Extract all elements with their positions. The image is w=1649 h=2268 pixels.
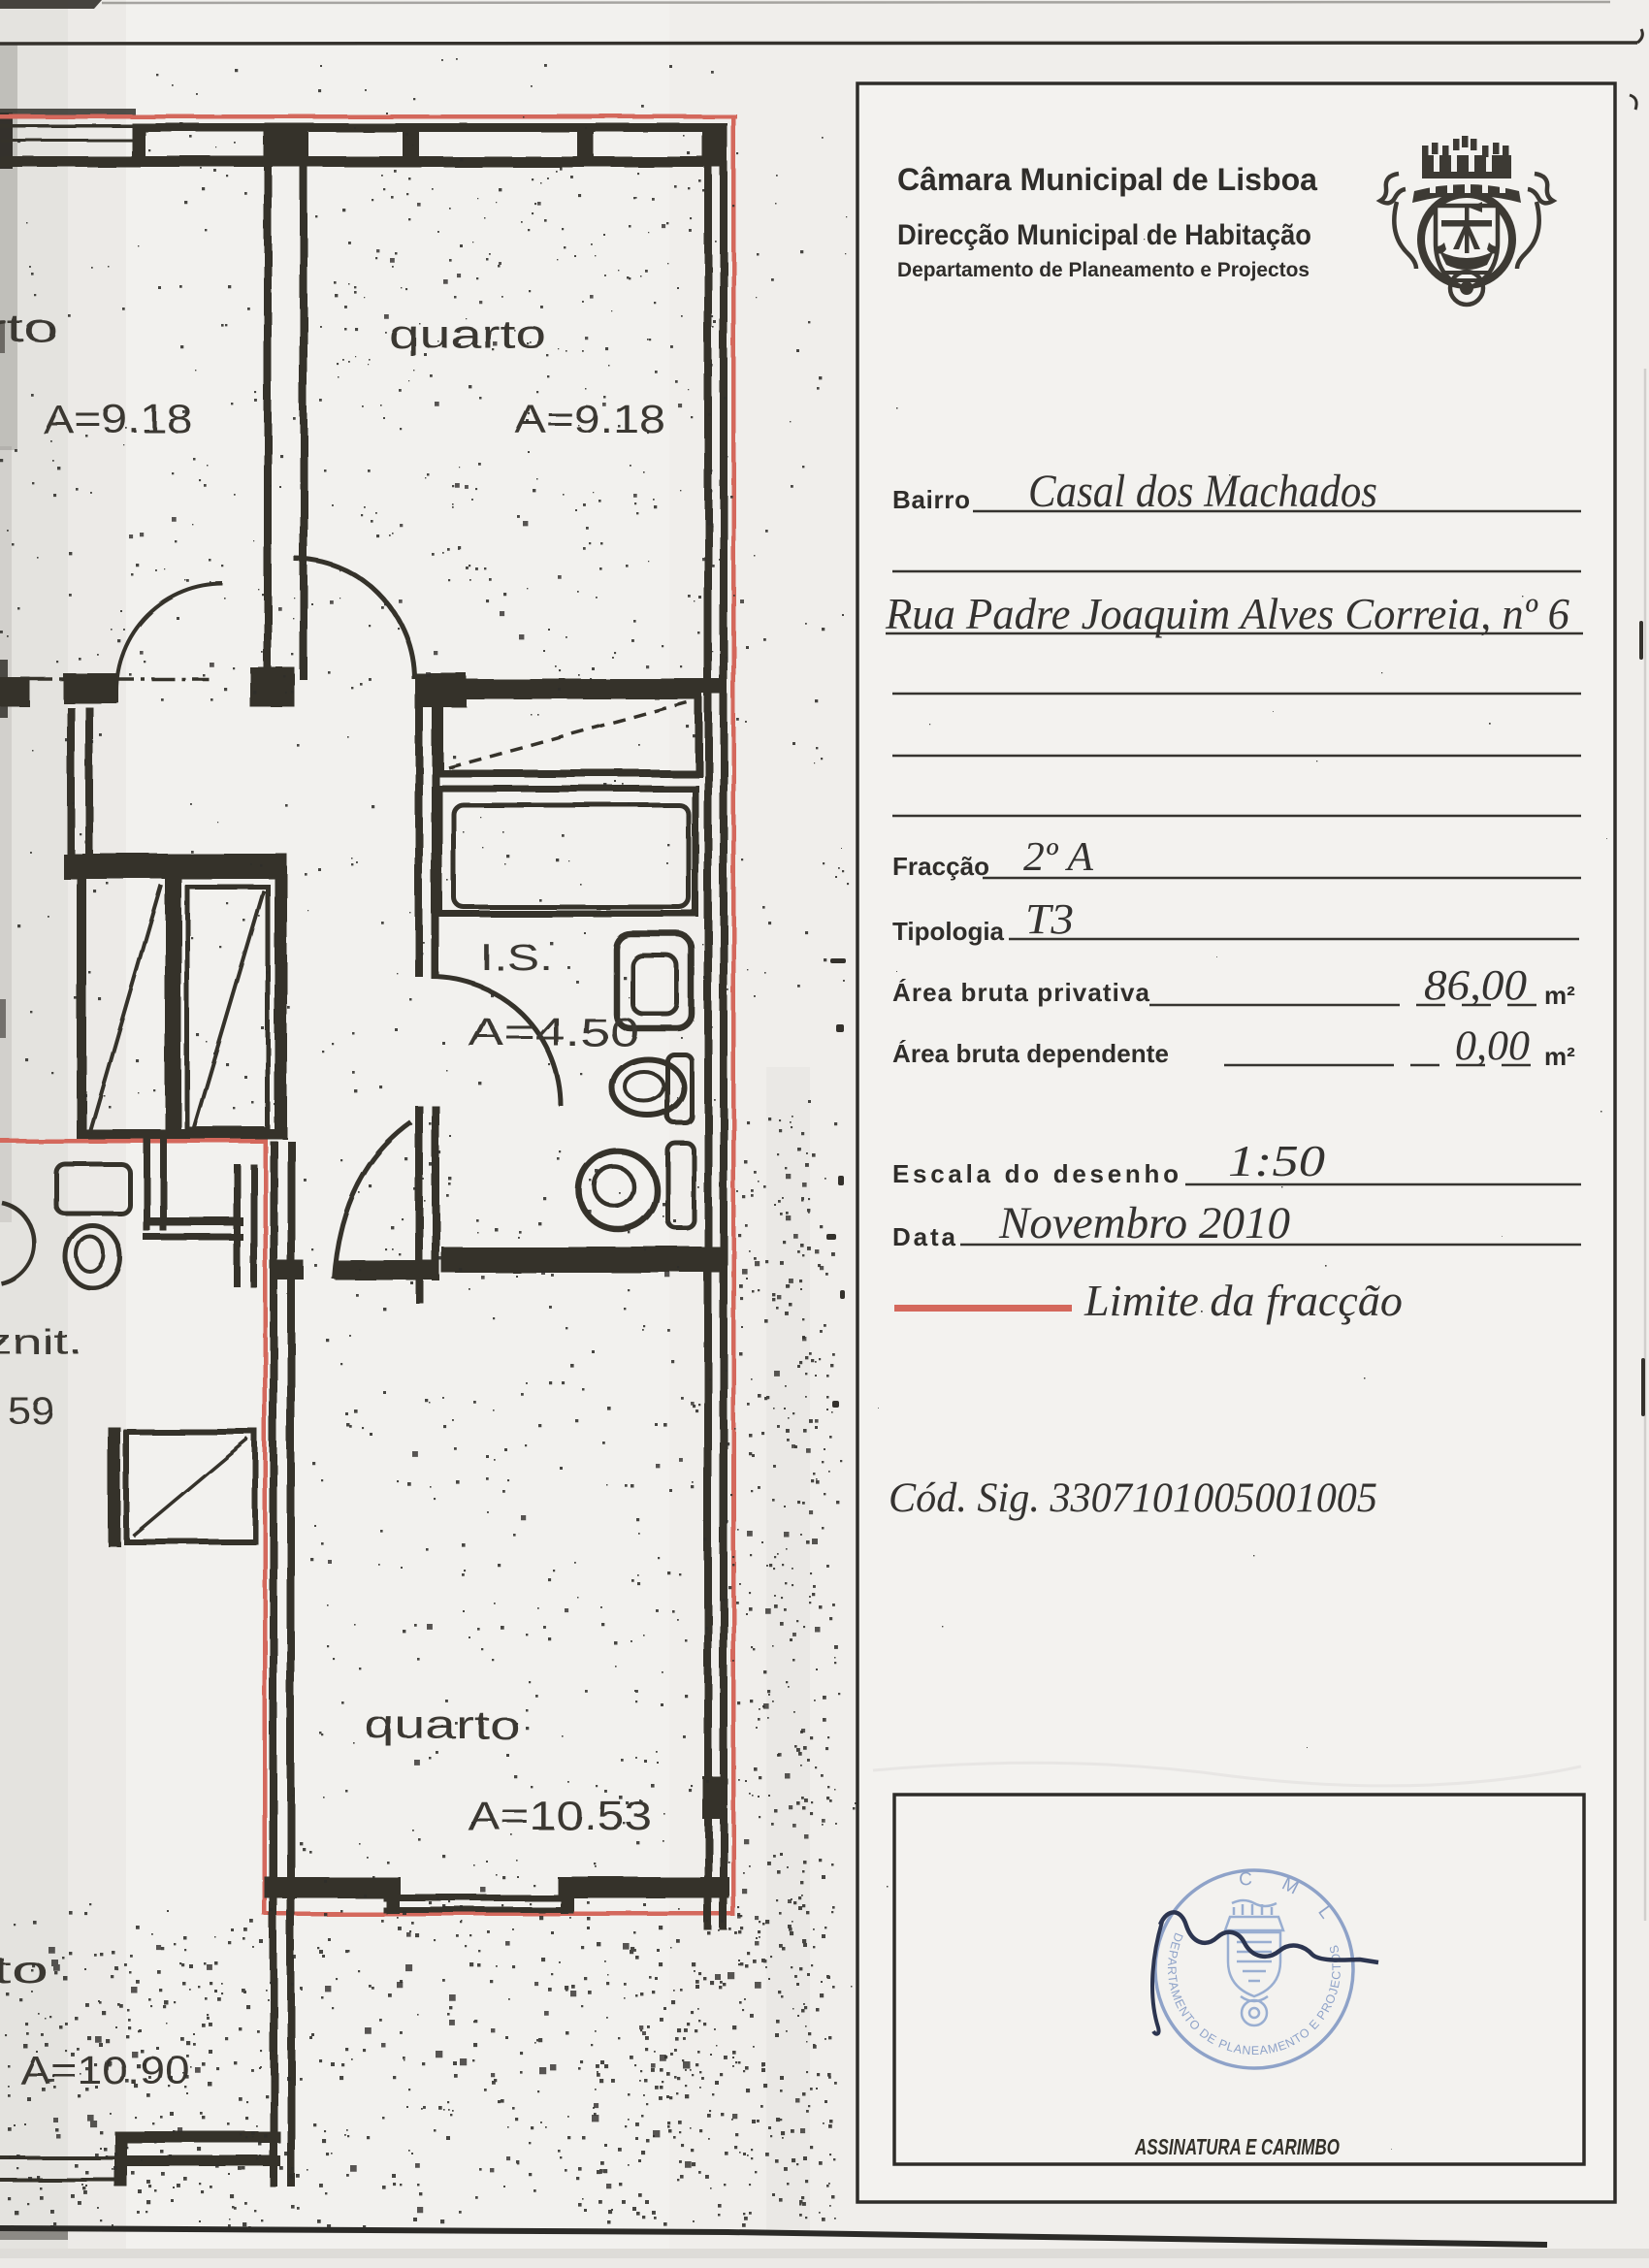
svg-text:A=10.90: A=10.90 [20, 2048, 190, 2092]
svg-text:Direcção Municipal de Habitaçã: Direcção Municipal de Habitação [897, 219, 1311, 251]
svg-text:Departamento de Planeamento e: Departamento de Planeamento e Projectos [897, 258, 1309, 281]
svg-text:2º A: 2º A [1023, 835, 1093, 880]
svg-text:Câmara Municipal de Lisboa: Câmara Municipal de Lisboa [897, 162, 1318, 197]
svg-text:znit.: znit. [0, 1321, 82, 1361]
svg-text:Tipologia: Tipologia [892, 917, 1005, 946]
svg-text:86,00: 86,00 [1424, 961, 1527, 1009]
svg-text:A=4.50: A=4.50 [469, 1009, 639, 1054]
svg-text:Área bruta dependente: Área bruta dependente [892, 1039, 1169, 1068]
svg-text:I.S.: I.S. [480, 938, 553, 979]
svg-text:m²: m² [1544, 981, 1575, 1010]
svg-text:A=9.18: A=9.18 [43, 397, 193, 441]
svg-text:59: 59 [8, 1390, 54, 1433]
svg-text:m²: m² [1544, 1042, 1575, 1071]
svg-text:A=9.18: A=9.18 [515, 397, 665, 441]
svg-text:Área bruta privativa: Área bruta privativa [892, 978, 1150, 1007]
svg-text:to: to [0, 1949, 48, 1992]
svg-text:Rua Padre Joaquim Alves Correi: Rua Padre Joaquim Alves Correia, nº 6 [885, 589, 1569, 638]
svg-text:Cód. Sig. 3307101005001005: Cód. Sig. 3307101005001005 [889, 1475, 1377, 1521]
svg-text:Bairro: Bairro [892, 485, 970, 514]
svg-text:1:50: 1:50 [1228, 1136, 1325, 1185]
svg-text:ASSINATURA E CARIMBO: ASSINATURA E CARIMBO [1134, 2134, 1340, 2159]
svg-text:Casal dos Machados: Casal dos Machados [1028, 466, 1377, 517]
svg-text:quarto: quarto [388, 311, 546, 356]
svg-text:Data: Data [892, 1222, 956, 1251]
svg-text:T3: T3 [1025, 895, 1074, 943]
svg-text:A=10.53: A=10.53 [468, 1793, 652, 1838]
svg-text:Escala do desenho: Escala do desenho [892, 1159, 1179, 1188]
svg-text:0,00: 0,00 [1455, 1023, 1530, 1069]
svg-text:Limite da fracção: Limite da fracção [1083, 1276, 1403, 1325]
svg-text:rto: rto [0, 308, 58, 350]
svg-text:Novembro 2010: Novembro 2010 [998, 1198, 1290, 1248]
svg-text:Fracção: Fracção [892, 852, 989, 881]
